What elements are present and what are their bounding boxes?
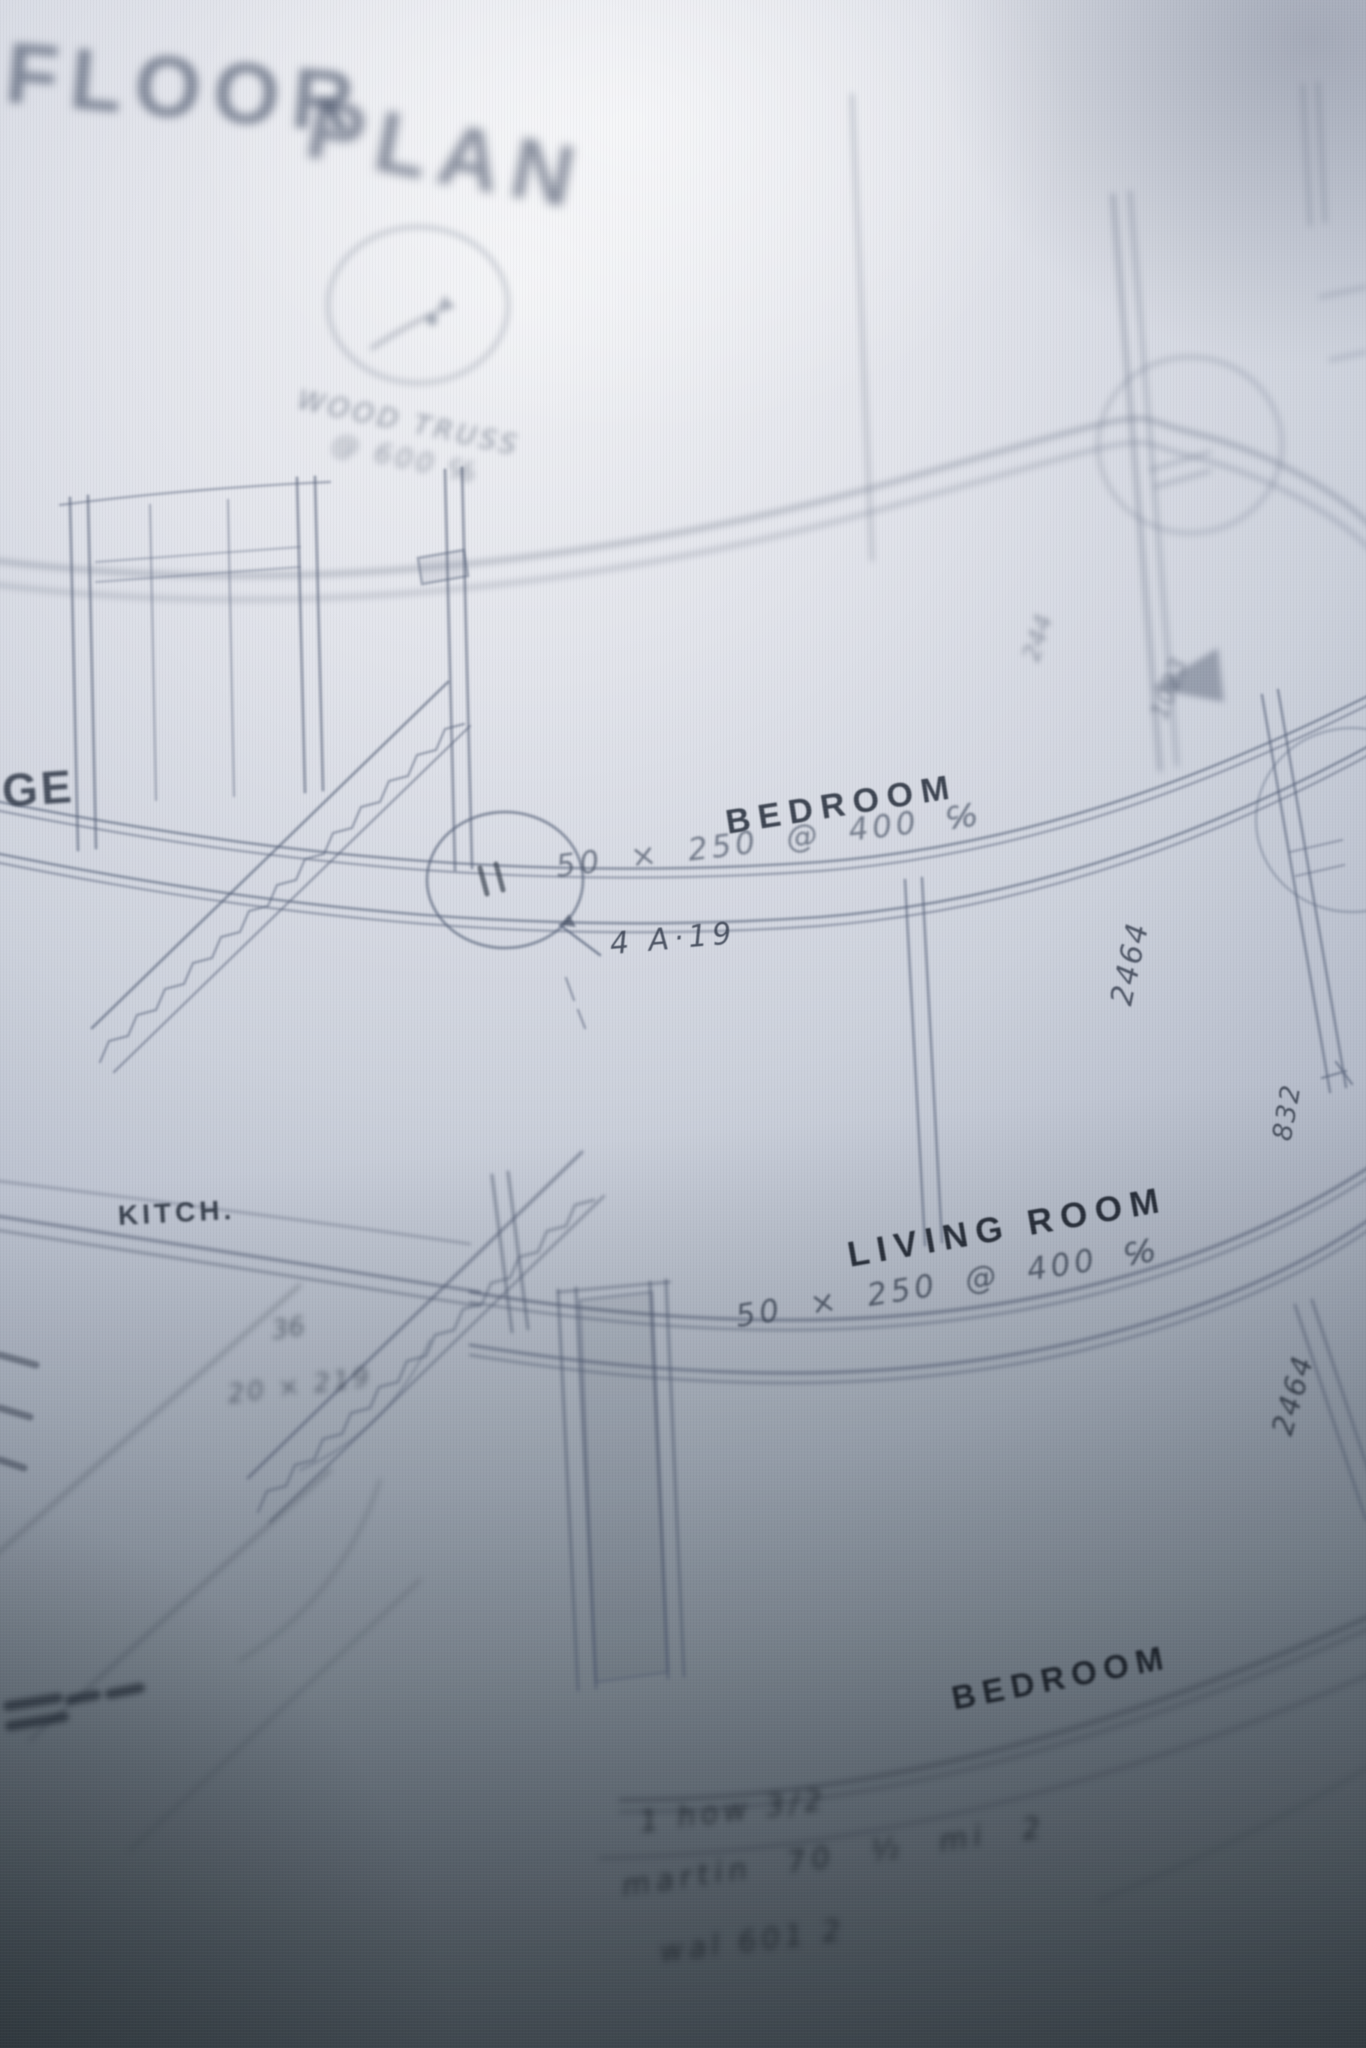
door-leaf xyxy=(558,1280,684,1690)
room-label-partial: GE xyxy=(0,763,76,814)
lower-rooms-linework xyxy=(0,1152,1366,1690)
room-label-kitchen: KITCH. xyxy=(117,1196,236,1230)
stair-upper xyxy=(92,682,470,1072)
kitchen-note-line1: 36 xyxy=(270,1314,306,1344)
plan-linework xyxy=(0,0,1366,2048)
detail-circle-right-icon xyxy=(1098,357,1282,533)
detail-marker-circle-icon xyxy=(328,227,508,383)
cutoff-word-marks xyxy=(8,1688,140,1726)
blueprint-photo: FLOOR PLAN WOOD TRUSS @ 600 ℅ GE BEDROOM… xyxy=(0,0,1366,2048)
